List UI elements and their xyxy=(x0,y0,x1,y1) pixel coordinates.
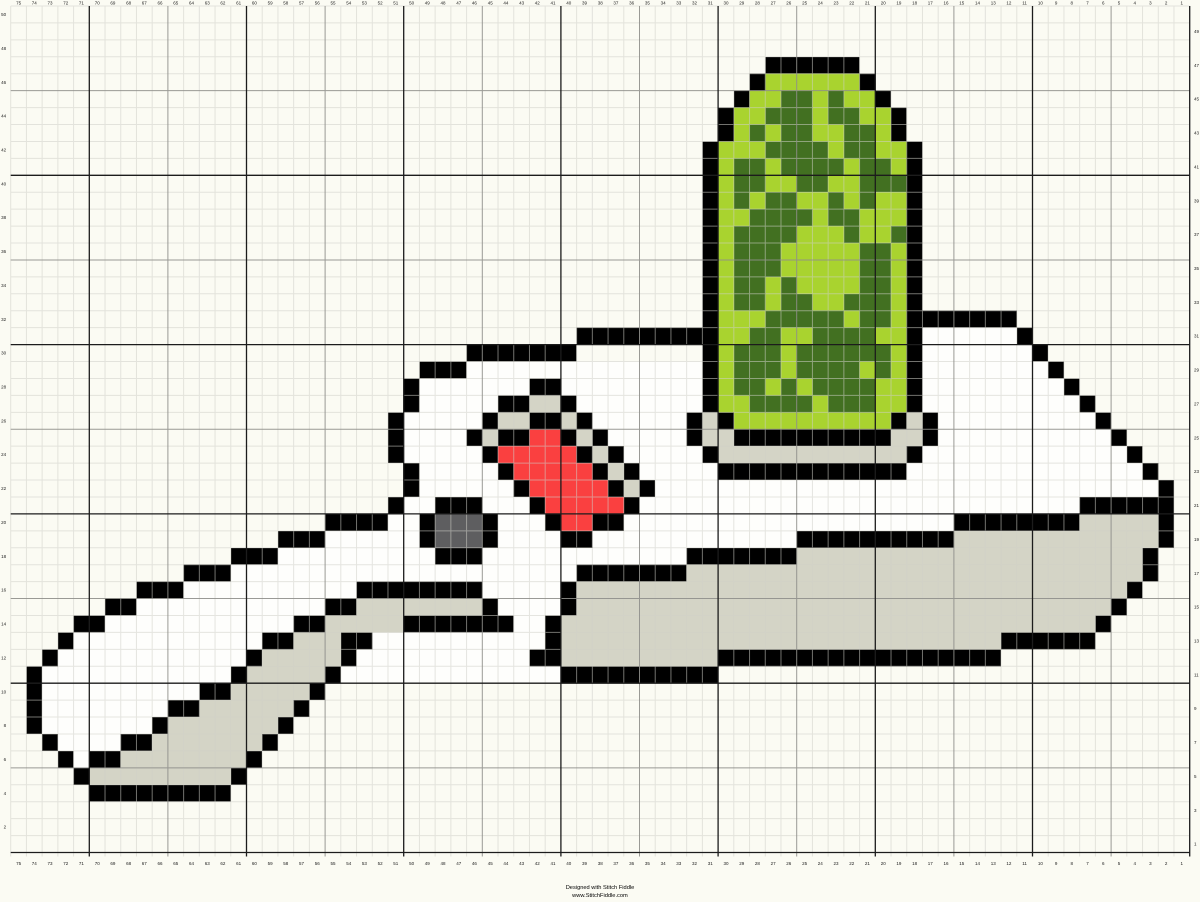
svg-text:63: 63 xyxy=(205,861,211,866)
svg-text:43: 43 xyxy=(1194,131,1200,136)
svg-text:69: 69 xyxy=(110,861,116,866)
svg-text:15: 15 xyxy=(1194,605,1200,610)
svg-text:21: 21 xyxy=(1194,503,1200,508)
svg-text:54: 54 xyxy=(346,861,352,866)
svg-text:75: 75 xyxy=(16,861,22,866)
svg-text:64: 64 xyxy=(189,0,195,5)
svg-text:13: 13 xyxy=(991,861,997,866)
svg-text:50: 50 xyxy=(409,0,415,5)
svg-text:30: 30 xyxy=(1,351,7,356)
svg-text:17: 17 xyxy=(928,861,934,866)
svg-text:25: 25 xyxy=(802,0,808,5)
svg-text:17: 17 xyxy=(1194,571,1200,576)
svg-text:74: 74 xyxy=(32,861,38,866)
svg-text:47: 47 xyxy=(456,861,462,866)
svg-text:72: 72 xyxy=(63,861,69,866)
svg-text:34: 34 xyxy=(661,0,667,5)
svg-text:40: 40 xyxy=(566,861,572,866)
svg-text:57: 57 xyxy=(299,861,305,866)
svg-text:55: 55 xyxy=(330,0,336,5)
svg-text:13: 13 xyxy=(991,0,997,5)
svg-text:31: 31 xyxy=(708,861,714,866)
svg-text:66: 66 xyxy=(157,861,163,866)
svg-text:63: 63 xyxy=(205,0,211,5)
svg-text:36: 36 xyxy=(1,249,7,254)
svg-text:70: 70 xyxy=(95,861,101,866)
svg-text:44: 44 xyxy=(503,0,509,5)
svg-text:48: 48 xyxy=(440,0,446,5)
svg-text:53: 53 xyxy=(362,0,368,5)
svg-text:60: 60 xyxy=(252,0,258,5)
svg-text:19: 19 xyxy=(1194,537,1200,542)
svg-text:55: 55 xyxy=(330,861,336,866)
svg-text:14: 14 xyxy=(975,861,981,866)
svg-text:18: 18 xyxy=(1,554,7,559)
svg-text:43: 43 xyxy=(519,861,525,866)
svg-text:38: 38 xyxy=(1,215,7,220)
svg-text:52: 52 xyxy=(378,861,384,866)
svg-text:36: 36 xyxy=(629,0,635,5)
svg-text:27: 27 xyxy=(771,861,777,866)
svg-text:72: 72 xyxy=(63,0,69,5)
svg-text:20: 20 xyxy=(1,520,7,525)
svg-text:41: 41 xyxy=(550,0,556,5)
svg-text:60: 60 xyxy=(252,861,258,866)
svg-text:12: 12 xyxy=(1,655,7,660)
svg-text:65: 65 xyxy=(173,0,179,5)
svg-text:61: 61 xyxy=(236,0,242,5)
svg-text:25: 25 xyxy=(802,861,808,866)
svg-text:58: 58 xyxy=(283,861,289,866)
svg-text:11: 11 xyxy=(1022,0,1027,5)
svg-text:59: 59 xyxy=(268,0,274,5)
svg-text:49: 49 xyxy=(1194,29,1200,34)
svg-text:44: 44 xyxy=(503,861,509,866)
svg-text:Designed with Stitch Fiddle: Designed with Stitch Fiddle xyxy=(566,885,635,891)
svg-text:39: 39 xyxy=(582,0,588,5)
svg-text:16: 16 xyxy=(943,0,949,5)
svg-text:14: 14 xyxy=(1,622,7,627)
svg-text:73: 73 xyxy=(47,0,53,5)
svg-text:www.StitchFiddle.com: www.StitchFiddle.com xyxy=(571,893,628,897)
svg-text:26: 26 xyxy=(786,861,792,866)
svg-text:57: 57 xyxy=(299,0,305,5)
svg-text:27: 27 xyxy=(771,0,777,5)
svg-text:62: 62 xyxy=(220,861,226,866)
svg-text:27: 27 xyxy=(1194,402,1200,407)
svg-text:46: 46 xyxy=(472,0,478,5)
svg-text:30: 30 xyxy=(723,0,729,5)
svg-text:36: 36 xyxy=(629,861,635,866)
svg-text:58: 58 xyxy=(283,0,289,5)
svg-text:62: 62 xyxy=(220,0,226,5)
svg-text:12: 12 xyxy=(1006,861,1012,866)
svg-text:50: 50 xyxy=(1,12,7,17)
svg-text:32: 32 xyxy=(692,0,698,5)
svg-text:18: 18 xyxy=(912,861,918,866)
svg-text:28: 28 xyxy=(1,385,7,390)
svg-text:15: 15 xyxy=(959,861,965,866)
svg-text:38: 38 xyxy=(598,861,604,866)
svg-text:24: 24 xyxy=(1,452,7,457)
svg-text:54: 54 xyxy=(346,0,352,5)
svg-text:52: 52 xyxy=(378,0,384,5)
svg-text:16: 16 xyxy=(943,861,949,866)
svg-text:61: 61 xyxy=(236,861,242,866)
svg-text:32: 32 xyxy=(692,861,698,866)
svg-text:30: 30 xyxy=(723,861,729,866)
svg-text:40: 40 xyxy=(1,181,7,186)
svg-text:44: 44 xyxy=(1,114,7,119)
svg-text:42: 42 xyxy=(535,0,541,5)
svg-text:16: 16 xyxy=(1,588,7,593)
svg-text:33: 33 xyxy=(1194,300,1200,305)
svg-text:31: 31 xyxy=(1194,334,1200,339)
svg-text:41: 41 xyxy=(550,861,556,866)
svg-text:71: 71 xyxy=(79,0,85,5)
svg-text:59: 59 xyxy=(268,861,274,866)
svg-text:19: 19 xyxy=(896,861,902,866)
svg-text:48: 48 xyxy=(1,46,7,51)
svg-text:11: 11 xyxy=(1022,861,1027,866)
svg-text:10: 10 xyxy=(1038,0,1044,5)
svg-text:65: 65 xyxy=(173,861,179,866)
svg-text:14: 14 xyxy=(975,0,981,5)
svg-text:26: 26 xyxy=(786,0,792,5)
svg-text:11: 11 xyxy=(1194,672,1199,677)
svg-text:10: 10 xyxy=(1038,861,1044,866)
svg-text:45: 45 xyxy=(488,861,494,866)
svg-text:39: 39 xyxy=(582,861,588,866)
svg-text:33: 33 xyxy=(676,0,682,5)
svg-text:28: 28 xyxy=(755,861,761,866)
svg-text:20: 20 xyxy=(881,0,887,5)
svg-text:42: 42 xyxy=(1,148,7,153)
svg-text:71: 71 xyxy=(79,861,85,866)
svg-text:12: 12 xyxy=(1006,0,1012,5)
svg-text:75: 75 xyxy=(16,0,22,5)
svg-text:22: 22 xyxy=(849,861,855,866)
svg-text:33: 33 xyxy=(676,861,682,866)
svg-text:74: 74 xyxy=(32,0,38,5)
svg-text:45: 45 xyxy=(1194,97,1200,102)
svg-text:39: 39 xyxy=(1194,198,1200,203)
svg-text:53: 53 xyxy=(362,861,368,866)
svg-text:22: 22 xyxy=(1,486,7,491)
svg-text:20: 20 xyxy=(881,861,887,866)
svg-text:29: 29 xyxy=(739,0,745,5)
svg-text:38: 38 xyxy=(598,0,604,5)
svg-text:28: 28 xyxy=(755,0,761,5)
svg-text:47: 47 xyxy=(1194,63,1200,68)
svg-text:13: 13 xyxy=(1194,639,1200,644)
svg-text:51: 51 xyxy=(393,861,399,866)
svg-text:68: 68 xyxy=(126,0,132,5)
svg-text:35: 35 xyxy=(645,0,651,5)
svg-text:48: 48 xyxy=(440,861,446,866)
svg-text:22: 22 xyxy=(849,0,855,5)
svg-text:29: 29 xyxy=(1194,368,1200,373)
svg-text:10: 10 xyxy=(1,689,7,694)
svg-text:21: 21 xyxy=(865,0,871,5)
svg-text:47: 47 xyxy=(456,0,462,5)
svg-text:18: 18 xyxy=(912,0,918,5)
svg-text:69: 69 xyxy=(110,0,116,5)
svg-text:40: 40 xyxy=(566,0,572,5)
svg-text:50: 50 xyxy=(409,861,415,866)
svg-text:35: 35 xyxy=(1194,266,1200,271)
svg-text:49: 49 xyxy=(425,861,431,866)
svg-text:34: 34 xyxy=(661,861,667,866)
svg-text:34: 34 xyxy=(1,283,7,288)
svg-text:26: 26 xyxy=(1,418,7,423)
svg-text:51: 51 xyxy=(393,0,399,5)
svg-text:45: 45 xyxy=(488,0,494,5)
svg-text:24: 24 xyxy=(818,861,824,866)
svg-text:35: 35 xyxy=(645,861,651,866)
svg-text:70: 70 xyxy=(95,0,101,5)
svg-text:23: 23 xyxy=(1194,469,1200,474)
svg-text:37: 37 xyxy=(1194,232,1200,237)
svg-text:37: 37 xyxy=(613,861,619,866)
svg-text:67: 67 xyxy=(142,861,148,866)
svg-text:15: 15 xyxy=(959,0,965,5)
svg-text:56: 56 xyxy=(315,0,321,5)
svg-text:23: 23 xyxy=(833,861,839,866)
svg-text:25: 25 xyxy=(1194,435,1200,440)
svg-text:19: 19 xyxy=(896,0,902,5)
svg-text:41: 41 xyxy=(1194,164,1200,169)
svg-text:37: 37 xyxy=(613,0,619,5)
svg-text:21: 21 xyxy=(865,861,871,866)
svg-text:32: 32 xyxy=(1,317,7,322)
svg-text:64: 64 xyxy=(189,861,195,866)
svg-text:24: 24 xyxy=(818,0,824,5)
svg-text:66: 66 xyxy=(157,0,163,5)
svg-text:17: 17 xyxy=(928,0,934,5)
svg-text:29: 29 xyxy=(739,861,745,866)
svg-text:31: 31 xyxy=(708,0,714,5)
svg-text:49: 49 xyxy=(425,0,431,5)
svg-text:23: 23 xyxy=(833,0,839,5)
svg-text:46: 46 xyxy=(1,80,7,85)
svg-text:68: 68 xyxy=(126,861,132,866)
svg-text:73: 73 xyxy=(47,861,53,866)
svg-text:67: 67 xyxy=(142,0,148,5)
svg-text:42: 42 xyxy=(535,861,541,866)
svg-text:46: 46 xyxy=(472,861,478,866)
svg-text:43: 43 xyxy=(519,0,525,5)
svg-text:56: 56 xyxy=(315,861,321,866)
